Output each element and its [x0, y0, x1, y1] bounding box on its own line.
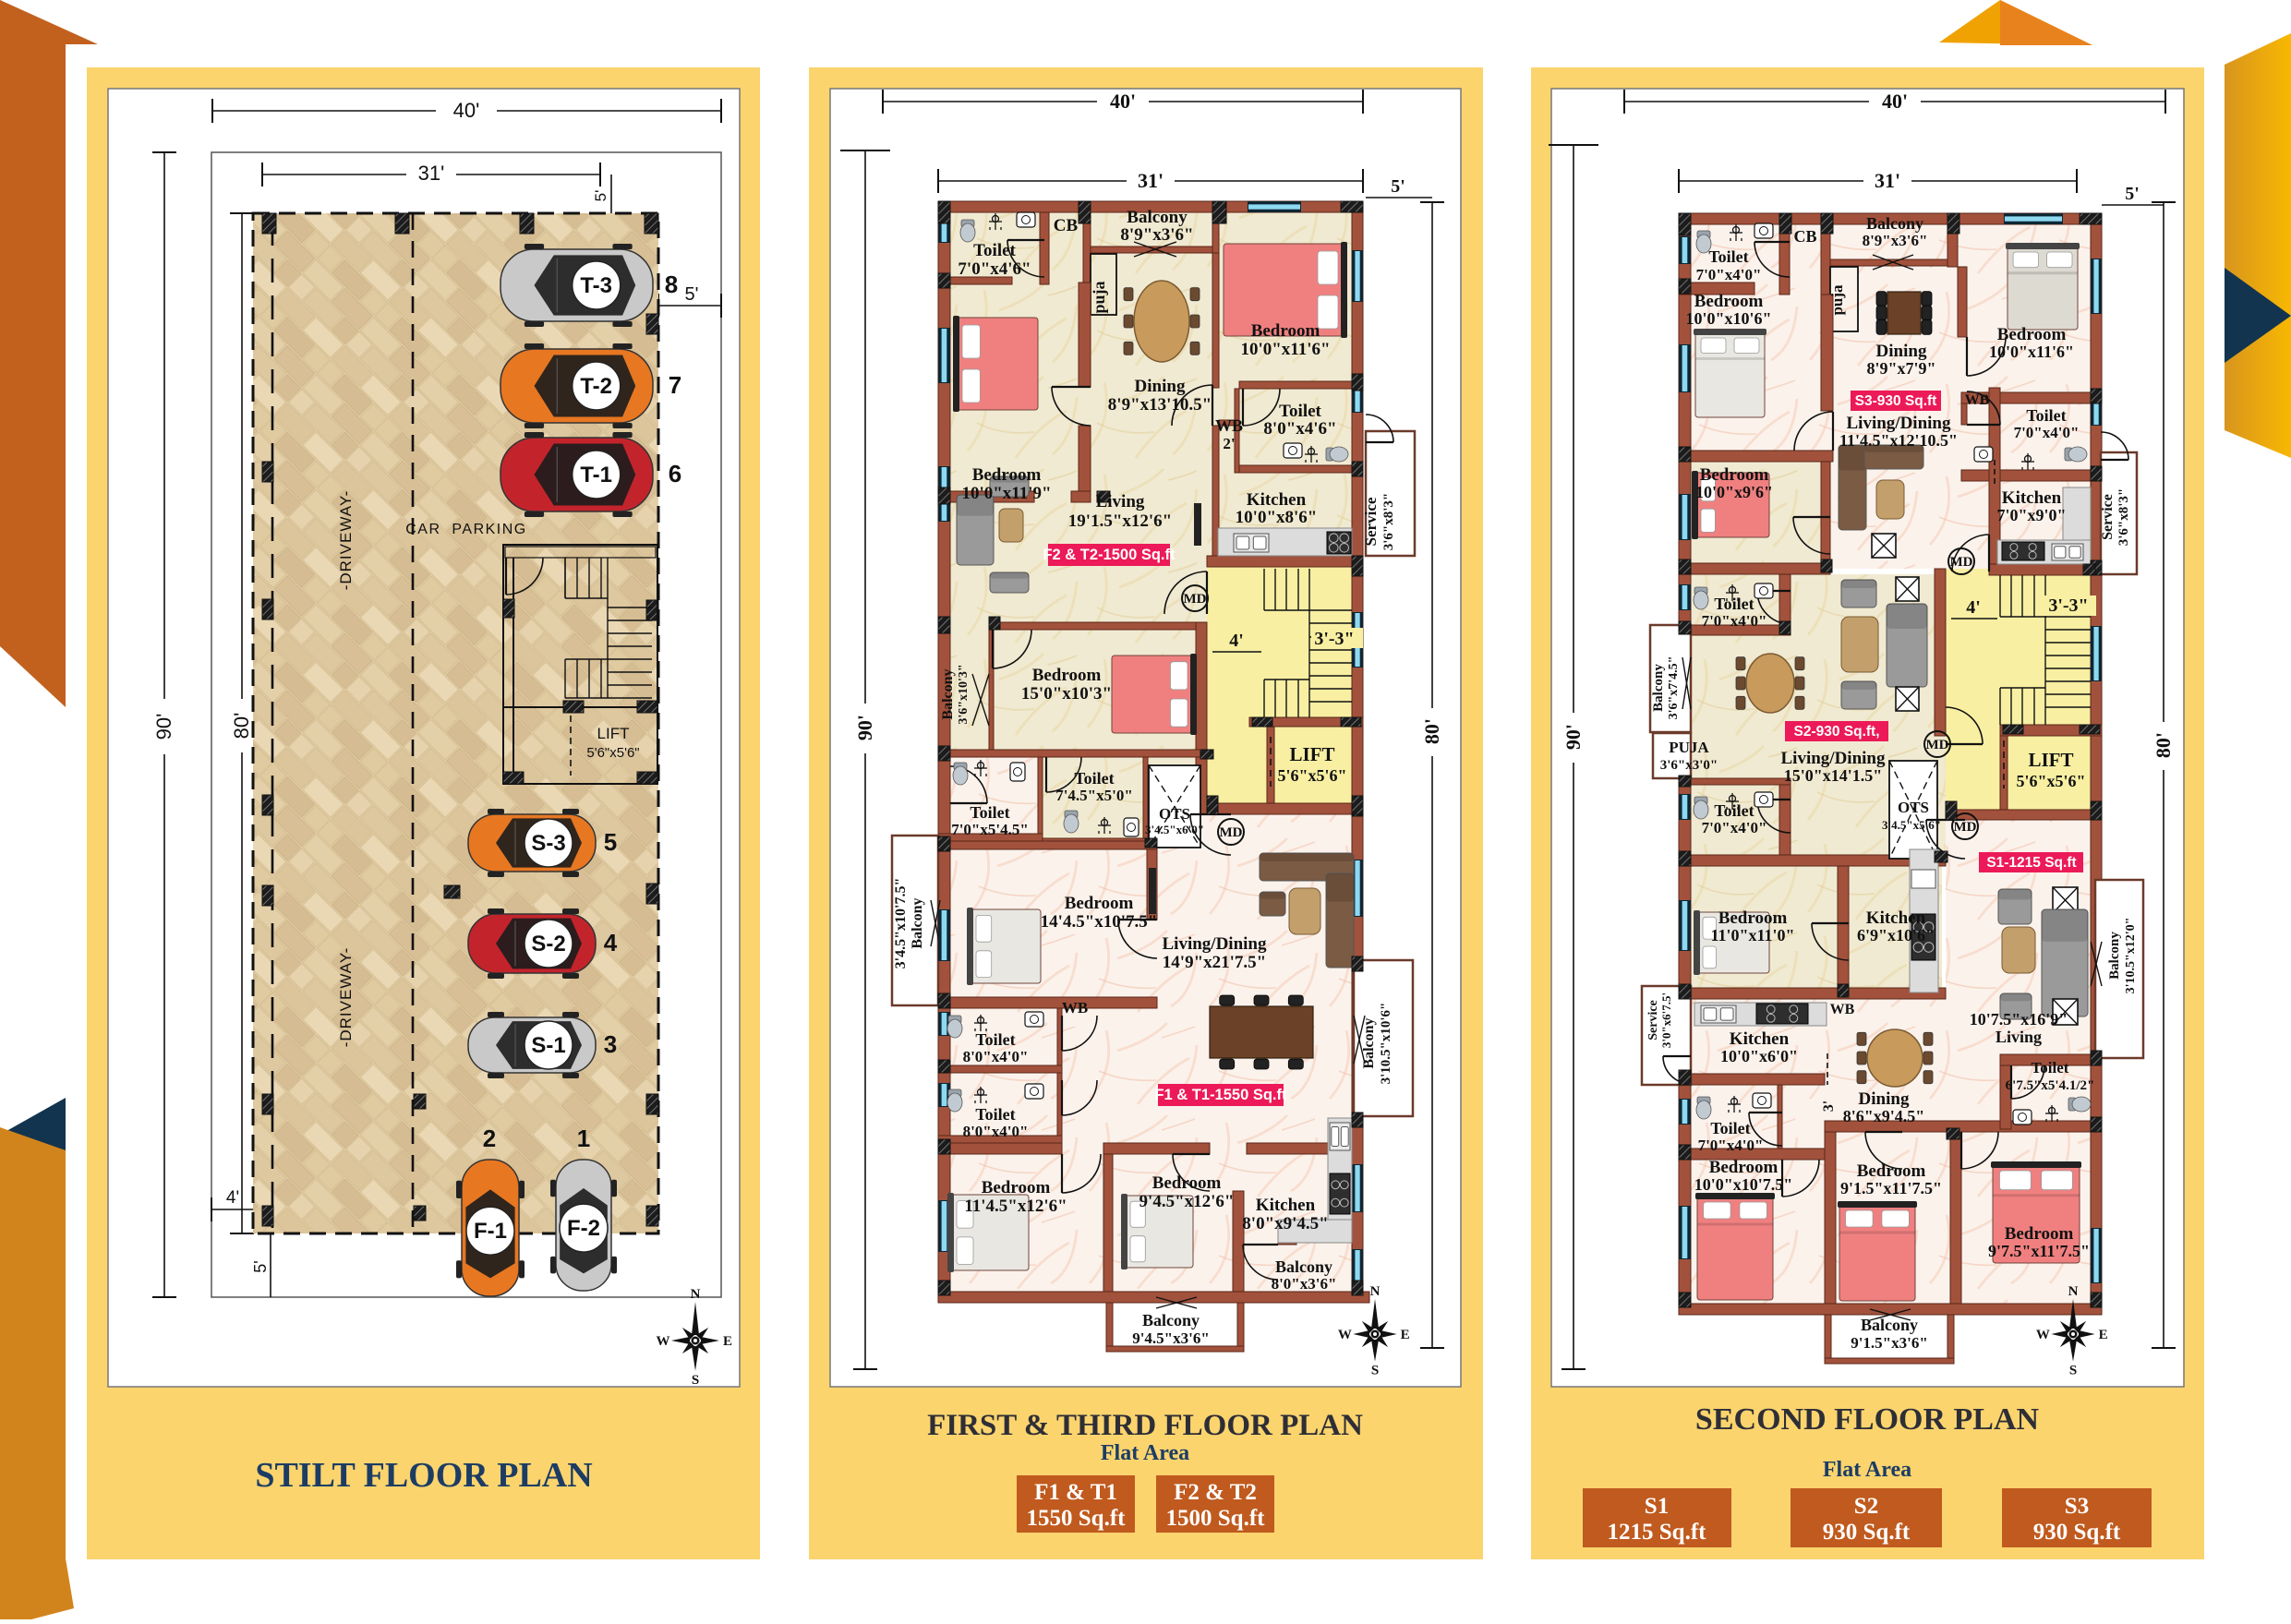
- svg-text:Balcony: Balcony: [910, 897, 925, 948]
- svg-text:MD: MD: [1220, 825, 1243, 840]
- svg-text:F2 & T2: F2 & T2: [1174, 1480, 1257, 1505]
- svg-text:S-1: S-1: [531, 1033, 565, 1058]
- svg-text:Bedroom: Bedroom: [972, 465, 1042, 485]
- svg-text:3'6"x10'3": 3'6"x10'3": [957, 664, 971, 724]
- svg-text:puja: puja: [1090, 281, 1108, 313]
- svg-text:E: E: [723, 1334, 732, 1349]
- svg-text:WB: WB: [1965, 392, 1990, 408]
- svg-text:7'0"x4'0": 7'0"x4'0": [2014, 424, 2080, 441]
- svg-text:Living: Living: [1996, 1028, 2042, 1046]
- svg-text:S-2: S-2: [531, 932, 565, 956]
- svg-text:40': 40': [1882, 90, 1908, 113]
- svg-text:Bedroom: Bedroom: [2005, 1224, 2074, 1244]
- svg-text:9'1.5"x3'6": 9'1.5"x3'6": [1851, 1334, 1928, 1352]
- svg-text:14'9"x21'7.5": 14'9"x21'7.5": [1163, 953, 1266, 972]
- svg-text:-DRIVEWAY-: -DRIVEWAY-: [337, 947, 355, 1048]
- svg-text:S3: S3: [2065, 1494, 2089, 1519]
- svg-text:7'0"x5'4.5": 7'0"x5'4.5": [951, 821, 1029, 838]
- svg-text:T-3: T-3: [580, 273, 612, 298]
- svg-text:31': 31': [1875, 169, 1900, 192]
- svg-text:LIFT: LIFT: [1289, 743, 1334, 765]
- svg-text:W: W: [1338, 1328, 1352, 1342]
- svg-text:5': 5': [2125, 184, 2140, 204]
- svg-text:11'4.5"x12'6": 11'4.5"x12'6": [964, 1197, 1067, 1216]
- svg-text:E: E: [2099, 1328, 2108, 1342]
- svg-text:3'4.5"x5'6": 3'4.5"x5'6": [1882, 818, 1941, 832]
- svg-text:Toilet: Toilet: [975, 1105, 1015, 1124]
- svg-text:7: 7: [669, 371, 681, 399]
- svg-text:Bedroom: Bedroom: [1251, 321, 1320, 341]
- svg-text:F1 & T1: F1 & T1: [1034, 1480, 1117, 1505]
- svg-text:8'6"x9'4.5": 8'6"x9'4.5": [1843, 1107, 1925, 1125]
- svg-text:F-2: F-2: [567, 1216, 600, 1241]
- svg-text:4': 4': [1229, 631, 1244, 651]
- svg-text:LIFT: LIFT: [597, 725, 630, 742]
- svg-text:15'0"x10'3": 15'0"x10'3": [1021, 684, 1112, 704]
- svg-text:Kitchen: Kitchen: [1247, 490, 1307, 510]
- svg-text:8'0"x3'6": 8'0"x3'6": [1272, 1275, 1337, 1293]
- svg-text:40': 40': [453, 99, 480, 122]
- svg-text:Balcony: Balcony: [1866, 214, 1923, 233]
- svg-text:Toilet: Toilet: [1708, 247, 1748, 266]
- svg-text:-DRIVEWAY-: -DRIVEWAY-: [337, 490, 355, 591]
- svg-text:8'0"x4'0": 8'0"x4'0": [963, 1123, 1029, 1140]
- svg-text:Living: Living: [1096, 492, 1145, 511]
- svg-text:10'0"x6'0": 10'0"x6'0": [1720, 1047, 1798, 1065]
- svg-text:3'-3": 3'-3": [2048, 595, 2088, 616]
- svg-text:930 Sq.ft: 930 Sq.ft: [2033, 1520, 2121, 1545]
- svg-text:S-3: S-3: [531, 831, 565, 856]
- svg-text:4': 4': [226, 1188, 239, 1208]
- svg-text:WB: WB: [1830, 1002, 1855, 1017]
- svg-text:5': 5': [1391, 176, 1405, 197]
- svg-text:3'6"x8'3": 3'6"x8'3": [1381, 493, 1396, 551]
- svg-text:Balcony: Balcony: [1651, 664, 1666, 712]
- svg-text:19'1.5"x12'6": 19'1.5"x12'6": [1068, 511, 1172, 531]
- svg-text:F1 & T1-1550 Sq.ft: F1 & T1-1550 Sq.ft: [1154, 1087, 1287, 1103]
- svg-text:S: S: [1371, 1364, 1379, 1378]
- svg-text:Bedroom: Bedroom: [1700, 465, 1769, 485]
- svg-text:Service: Service: [1362, 497, 1380, 546]
- svg-text:Toilet: Toilet: [1279, 402, 1321, 421]
- svg-text:T-1: T-1: [580, 463, 612, 487]
- svg-text:90': 90': [1561, 724, 1585, 750]
- svg-text:S2-930 Sq.ft,: S2-930 Sq.ft,: [1793, 724, 1879, 740]
- svg-text:Bedroom: Bedroom: [1718, 908, 1788, 928]
- svg-text:5': 5': [592, 190, 609, 202]
- svg-text:10'7.5"x16'9": 10'7.5"x16'9": [1970, 1010, 2068, 1029]
- svg-text:Toilet: Toilet: [1074, 769, 1114, 788]
- svg-text:Bedroom: Bedroom: [1709, 1158, 1779, 1177]
- svg-text:3'6"x3'0": 3'6"x3'0": [1660, 758, 1718, 773]
- svg-text:10'0"x11'6": 10'0"x11'6": [1989, 343, 2074, 361]
- svg-text:7'0"x4'0": 7'0"x4'0": [1696, 266, 1762, 283]
- svg-text:Service: Service: [2100, 494, 2116, 540]
- svg-text:6'7.5"x5'4.1/2": 6'7.5"x5'4.1/2": [2006, 1078, 2095, 1093]
- svg-text:Balcony: Balcony: [2107, 932, 2122, 980]
- svg-text:FIRST & THIRD FLOOR PLAN: FIRST & THIRD FLOOR PLAN: [927, 1409, 1363, 1442]
- svg-text:7'0"x4'0": 7'0"x4'0": [1702, 819, 1767, 836]
- svg-text:8'9"x13'10.5": 8'9"x13'10.5": [1108, 395, 1212, 415]
- svg-text:Bedroom: Bedroom: [1032, 666, 1102, 685]
- svg-text:4: 4: [604, 929, 618, 956]
- svg-text:Service: Service: [1646, 1000, 1660, 1041]
- svg-text:T-2: T-2: [580, 374, 612, 399]
- svg-text:MD: MD: [1184, 592, 1207, 607]
- svg-text:N: N: [1370, 1284, 1381, 1299]
- svg-text:Balcony: Balcony: [1127, 208, 1188, 227]
- svg-text:MD: MD: [1954, 820, 1977, 835]
- svg-text:Bedroom: Bedroom: [1152, 1173, 1222, 1193]
- svg-text:7'4.5"x5'0": 7'4.5"x5'0": [1055, 787, 1133, 804]
- svg-text:3'6"x8'3": 3'6"x8'3": [2116, 488, 2131, 547]
- svg-text:Toilet: Toilet: [2026, 406, 2066, 425]
- svg-text:3: 3: [604, 1030, 617, 1058]
- svg-text:Living/Dining: Living/Dining: [1847, 414, 1951, 433]
- svg-text:2': 2': [1223, 435, 1235, 452]
- svg-text:80': 80': [230, 713, 253, 740]
- svg-text:8'0"x9'4.5": 8'0"x9'4.5": [1242, 1214, 1328, 1233]
- svg-text:Kitchen: Kitchen: [1256, 1196, 1316, 1215]
- svg-text:Bedroom: Bedroom: [1065, 894, 1134, 913]
- svg-text:Toilet: Toilet: [2032, 1059, 2069, 1077]
- svg-text:S1: S1: [1645, 1494, 1669, 1519]
- svg-text:10'0"x10'6": 10'0"x10'6": [1686, 309, 1772, 328]
- svg-text:CB: CB: [1793, 227, 1816, 246]
- svg-text:930 Sq.ft: 930 Sq.ft: [1823, 1520, 1911, 1545]
- svg-text:SECOND FLOOR PLAN: SECOND FLOOR PLAN: [1695, 1402, 2040, 1437]
- svg-text:3'4.5"x6'0": 3'4.5"x6'0": [1145, 823, 1204, 836]
- svg-text:1500 Sq.ft: 1500 Sq.ft: [1166, 1506, 1266, 1531]
- svg-text:7'0"x9'0": 7'0"x9'0": [1997, 506, 2067, 524]
- svg-text:9'1.5"x11'7.5": 9'1.5"x11'7.5": [1840, 1179, 1942, 1197]
- svg-text:S: S: [692, 1373, 699, 1388]
- svg-text:5'6"x5'6": 5'6"x5'6": [2017, 772, 2086, 790]
- svg-text:S: S: [2069, 1364, 2077, 1378]
- svg-text:1: 1: [577, 1125, 590, 1152]
- svg-text:WB: WB: [1062, 999, 1088, 1017]
- svg-text:Kitchen: Kitchen: [2002, 488, 2062, 508]
- svg-text:Toilet: Toilet: [1710, 1119, 1750, 1137]
- svg-text:8'9"x7'9": 8'9"x7'9": [1867, 359, 1936, 378]
- svg-text:4': 4': [1966, 597, 1981, 618]
- svg-text:puja: puja: [1828, 284, 1846, 316]
- svg-text:W: W: [657, 1334, 670, 1349]
- svg-text:7'0"x4'6": 7'0"x4'6": [958, 259, 1031, 279]
- svg-text:10'0"x9'6": 10'0"x9'6": [1695, 483, 1773, 501]
- svg-text:31': 31': [418, 162, 445, 185]
- svg-text:11'0"x11'0": 11'0"x11'0": [1710, 926, 1794, 944]
- svg-text:Toilet: Toilet: [975, 1030, 1015, 1049]
- svg-text:5'6"x5'6": 5'6"x5'6": [1278, 766, 1347, 785]
- svg-text:N: N: [2068, 1284, 2079, 1299]
- svg-text:10'0"x11'6": 10'0"x11'6": [1240, 340, 1330, 359]
- svg-text:STILT FLOOR PLAN: STILT FLOOR PLAN: [255, 1456, 592, 1495]
- svg-text:MD: MD: [1950, 555, 1973, 570]
- svg-text:9'4.5"x12'6": 9'4.5"x12'6": [1139, 1192, 1235, 1211]
- svg-text:1550 Sq.ft: 1550 Sq.ft: [1027, 1506, 1127, 1531]
- svg-text:90': 90': [853, 715, 876, 740]
- svg-text:W: W: [2036, 1328, 2050, 1342]
- svg-text:40': 40': [1110, 90, 1136, 113]
- svg-text:8'9"x3'6": 8'9"x3'6": [1120, 225, 1193, 245]
- svg-text:Flat Area: Flat Area: [1823, 1458, 1911, 1482]
- svg-text:Bedroom: Bedroom: [1997, 325, 2067, 344]
- svg-text:Living/Dining: Living/Dining: [1163, 934, 1267, 954]
- svg-text:3'6"x7'4.5": 3'6"x7'4.5": [1667, 656, 1681, 720]
- svg-text:Flat Area: Flat Area: [1101, 1441, 1189, 1465]
- svg-text:7'0"x4'0": 7'0"x4'0": [1698, 1137, 1764, 1154]
- svg-text:2: 2: [483, 1125, 496, 1152]
- svg-text:9'7.5"x11'7.5": 9'7.5"x11'7.5": [1988, 1242, 2090, 1260]
- svg-text:MD: MD: [1926, 738, 1949, 752]
- svg-text:3'10.5"x12'0": 3'10.5"x12'0": [2124, 918, 2138, 994]
- svg-text:Toilet: Toilet: [973, 241, 1016, 260]
- svg-text:Toilet: Toilet: [970, 803, 1009, 822]
- svg-text:Balcony: Balcony: [1361, 1017, 1377, 1068]
- svg-text:Dining: Dining: [1135, 377, 1186, 396]
- svg-text:Balcony: Balcony: [1275, 1257, 1332, 1276]
- svg-text:8: 8: [665, 271, 678, 298]
- svg-text:WB: WB: [1215, 416, 1243, 435]
- svg-text:Toilet: Toilet: [1714, 801, 1754, 820]
- svg-text:Dining: Dining: [1859, 1089, 1910, 1109]
- svg-text:S2: S2: [1854, 1494, 1878, 1519]
- svg-text:Living/Dining: Living/Dining: [1781, 749, 1886, 768]
- svg-text:CAR PARKING: CAR PARKING: [405, 522, 527, 537]
- svg-text:10'0"x10'7.5": 10'0"x10'7.5": [1694, 1175, 1793, 1194]
- svg-text:Kitchen: Kitchen: [1866, 908, 1926, 928]
- svg-text:6: 6: [669, 460, 681, 487]
- svg-text:6'9"x10'6": 6'9"x10'6": [1857, 926, 1935, 944]
- svg-text:Bedroom: Bedroom: [1694, 292, 1764, 311]
- svg-text:8'0"x4'6": 8'0"x4'6": [1263, 419, 1336, 439]
- svg-text:PUJA: PUJA: [1669, 739, 1709, 756]
- svg-text:3'0"x6'7.5': 3'0"x6'7.5': [1659, 992, 1673, 1048]
- svg-text:1215 Sq.ft: 1215 Sq.ft: [1608, 1520, 1707, 1545]
- svg-text:11'4.5"x12'10.5": 11'4.5"x12'10.5": [1839, 431, 1958, 450]
- svg-text:S3-930 Sq.ft: S3-930 Sq.ft: [1855, 393, 1937, 409]
- svg-text:3'10.5"x10'6": 3'10.5"x10'6": [1379, 1003, 1393, 1085]
- svg-text:CB: CB: [1054, 216, 1079, 235]
- svg-text:31': 31': [1138, 169, 1164, 192]
- svg-text:3'4.5"x10'7.5": 3'4.5"x10'7.5": [893, 878, 909, 969]
- svg-text:7'0"x4'0": 7'0"x4'0": [1702, 612, 1767, 630]
- svg-text:8'0"x4'0": 8'0"x4'0": [963, 1048, 1029, 1065]
- svg-text:9'4.5"x3'6": 9'4.5"x3'6": [1132, 1329, 1210, 1347]
- svg-text:90': 90': [152, 714, 175, 740]
- svg-text:Toilet: Toilet: [1714, 595, 1754, 613]
- svg-text:Kitchen: Kitchen: [1730, 1029, 1790, 1049]
- svg-text:5: 5: [604, 828, 617, 856]
- svg-text:15'0"x14'1.5": 15'0"x14'1.5": [1784, 766, 1883, 785]
- svg-text:80': 80': [1420, 718, 1443, 744]
- svg-text:F2 & T2-1500 Sq.ft: F2 & T2-1500 Sq.ft: [1043, 547, 1176, 563]
- svg-text:Balcony: Balcony: [1861, 1316, 1918, 1334]
- svg-text:Balcony: Balcony: [940, 668, 956, 719]
- svg-text:Bedroom: Bedroom: [1857, 1161, 1926, 1181]
- svg-text:80': 80': [2152, 732, 2175, 758]
- svg-text:S1-1215 Sq.ft: S1-1215 Sq.ft: [1986, 855, 2076, 871]
- svg-text:N: N: [691, 1287, 701, 1302]
- svg-text:Balcony: Balcony: [1142, 1311, 1200, 1329]
- svg-text:3'-3": 3'-3": [1314, 629, 1354, 649]
- svg-text:OTS: OTS: [1159, 805, 1190, 823]
- svg-text:10'0"x11'9": 10'0"x11'9": [961, 484, 1051, 503]
- svg-text:F-1: F-1: [474, 1219, 507, 1244]
- svg-text:5': 5': [251, 1260, 270, 1272]
- svg-text:14'4.5"x10'7.5": 14'4.5"x10'7.5": [1041, 912, 1158, 932]
- svg-text:LIFT: LIFT: [2028, 749, 2073, 771]
- svg-text:3': 3': [1821, 1101, 1837, 1112]
- svg-text:Bedroom: Bedroom: [982, 1178, 1051, 1197]
- svg-text:8'9"x3'6": 8'9"x3'6": [1863, 232, 1928, 249]
- svg-text:Dining: Dining: [1876, 342, 1927, 361]
- svg-text:10'0"x8'6": 10'0"x8'6": [1236, 508, 1318, 527]
- svg-text:OTS: OTS: [1898, 799, 1929, 816]
- svg-text:5'6"x5'6": 5'6"x5'6": [586, 745, 639, 761]
- svg-text:E: E: [1401, 1328, 1410, 1342]
- svg-text:5': 5': [685, 284, 699, 305]
